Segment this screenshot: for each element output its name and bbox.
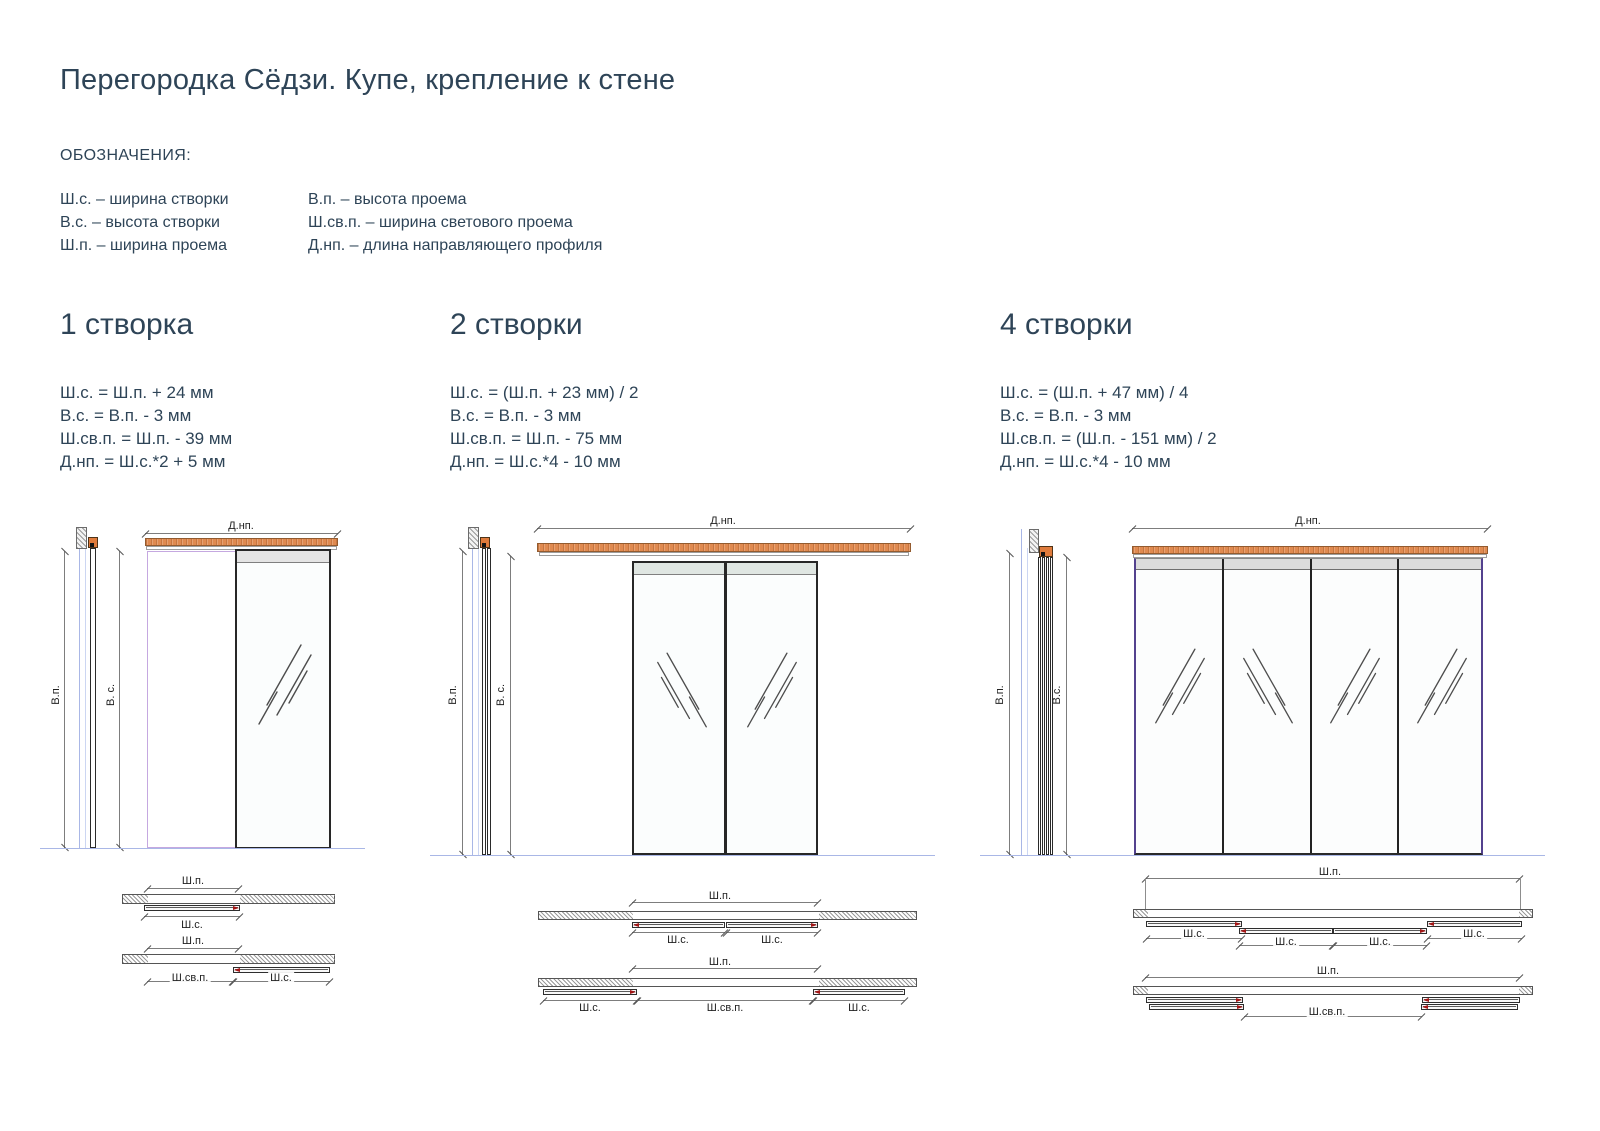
leaf-edge-profile <box>90 548 96 848</box>
roller-marker <box>633 923 639 927</box>
roller-marker <box>234 968 240 972</box>
dim-extension-line <box>1145 878 1146 909</box>
plan-door-bar <box>1333 928 1427 934</box>
dim-extension-line <box>1520 878 1521 909</box>
dim-leaf-width <box>726 932 818 933</box>
plan-wall-hatch <box>819 979 916 986</box>
formulas-2-leaves: Ш.с. = (Ш.п. + 23 мм) / 2 В.с. = В.п. - … <box>450 381 638 473</box>
track-bracket <box>88 537 98 548</box>
dim-label-shs: Ш.с. <box>1273 936 1299 949</box>
roller-marker <box>814 990 820 994</box>
wall-plane-line <box>1027 548 1028 855</box>
dim-label-shs: Ш.с. <box>577 1002 603 1015</box>
plan-wall-hatch <box>123 895 148 903</box>
dim-label-dnp: Д.нп. <box>708 515 738 528</box>
plan-door-bar-line <box>146 907 238 908</box>
formula-line: Ш.с. = (Ш.п. + 23 мм) / 2 <box>450 381 638 404</box>
plan-door-bar <box>1146 997 1243 1003</box>
plan-door-bar <box>1239 928 1333 934</box>
door-header-rail <box>237 551 329 563</box>
wall-hatch-block <box>468 527 479 549</box>
dim-track-length <box>537 528 911 529</box>
dim-opening-width <box>632 902 818 903</box>
plan-wall-hatch <box>1519 987 1532 994</box>
glass-icon <box>1327 629 1383 729</box>
door-leaf <box>235 549 331 849</box>
leaf-edge-profile <box>1042 557 1045 855</box>
dim-label-shs: Ш.с. <box>665 934 691 947</box>
door-leaf <box>632 561 726 855</box>
formula-line: Д.нп. = Ш.с.*2 + 5 мм <box>60 450 232 473</box>
dim-leaf-width <box>632 932 725 933</box>
formula-line: Ш.с. = (Ш.п. + 47 мм) / 4 <box>1000 381 1217 404</box>
plan-door-bar <box>632 922 725 928</box>
leaf-edge-profile <box>1046 557 1049 855</box>
dim-leaf-width <box>813 1000 905 1001</box>
plan-wall <box>1133 909 1533 918</box>
dim-leaf-height <box>510 556 511 855</box>
dim-label-shs: Ш.с. <box>1181 928 1207 941</box>
dim-label-dnp: Д.нп. <box>226 520 256 533</box>
dim-label-shs: Ш.с. <box>1367 936 1393 949</box>
formula-line: Ш.св.п. = (Ш.п. - 151 мм) / 2 <box>1000 427 1217 450</box>
wall-plane-line <box>1021 529 1022 855</box>
roller-marker <box>1237 1005 1243 1009</box>
plan-door-bar-line <box>545 991 635 992</box>
section-heading-1-leaf: 1 створка <box>60 308 193 342</box>
legend-item: В.п. – высота проема <box>308 191 467 209</box>
guide-track <box>1132 546 1488 554</box>
plan-door-bar-line <box>815 991 903 992</box>
formulas-4-leaves: Ш.с. = (Ш.п. + 47 мм) / 4 В.с. = В.п. - … <box>1000 381 1217 473</box>
plan-door-bar <box>1422 997 1520 1003</box>
leaf-edge-profile <box>1038 557 1041 855</box>
dim-track-length <box>1132 528 1488 529</box>
section-heading-2-leaves: 2 створки <box>450 308 583 342</box>
plan-door-bar-line <box>1423 1006 1516 1007</box>
plan-door-bar-line <box>634 924 723 925</box>
track-bracket <box>1039 546 1053 557</box>
plan-door-bar <box>1149 1004 1244 1010</box>
roller-marker <box>1420 929 1426 933</box>
plan-wall-hatch <box>240 955 335 963</box>
plan-door-bar-line <box>235 969 328 970</box>
dim-opening-width <box>147 888 239 889</box>
door-header-rail <box>634 563 724 575</box>
door-header-rail <box>727 563 816 575</box>
glass-icon <box>744 635 800 731</box>
page-title: Перегородка Сёдзи. Купе, крепление к сте… <box>60 64 675 97</box>
glass-icon <box>1414 629 1470 729</box>
legend-item: В.с. – высота створки <box>60 214 220 232</box>
door-leaf-group <box>1134 558 1483 855</box>
plan-door-bar <box>813 989 905 995</box>
plan-door-bar-line <box>1148 999 1241 1000</box>
dim-label-shs: Ш.с. <box>179 919 205 932</box>
dim-label-shsvp: Ш.св.п. <box>705 1002 746 1015</box>
plan-door-bar <box>1427 921 1522 927</box>
dim-label-shp: Ш.п. <box>1317 866 1343 879</box>
plan-door-bar <box>1146 921 1242 927</box>
glass-icon <box>654 635 710 731</box>
plan-door-bar-line <box>1429 923 1520 924</box>
roller-marker <box>1422 1005 1428 1009</box>
leaf-divider <box>1397 559 1399 853</box>
plan-door-bar-line <box>1424 999 1518 1000</box>
dim-leaf-height <box>1066 557 1067 855</box>
legend-heading: ОБОЗНАЧЕНИЯ: <box>60 147 191 165</box>
roller-detail <box>90 543 94 547</box>
plan-wall <box>1133 986 1533 995</box>
dim-label-vp: В.п. <box>447 685 459 704</box>
dim-label-shp: Ш.п. <box>1315 965 1341 978</box>
wall-plane-line <box>472 529 473 855</box>
dim-opening-width <box>147 948 239 949</box>
drawing-sheet: Перегородка Сёдзи. Купе, крепление к сте… <box>0 0 1600 1131</box>
dim-label-vs: В. с. <box>105 684 117 706</box>
formula-line: В.с. = В.п. - 3 мм <box>450 404 638 427</box>
plan-wall-hatch <box>539 979 633 986</box>
plan-door-bar <box>144 905 240 911</box>
plan-door-bar-line <box>1151 1006 1242 1007</box>
floor-line <box>430 855 935 856</box>
formula-line: Д.нп. = Ш.с.*4 - 10 мм <box>1000 450 1217 473</box>
dim-label-vs: В. с. <box>495 684 507 706</box>
section-heading-4-leaves: 4 створки <box>1000 308 1133 342</box>
dim-opening-width <box>632 968 818 969</box>
plan-door-bar <box>543 989 637 995</box>
roller-marker <box>1423 998 1429 1002</box>
plan-wall-hatch <box>539 912 633 919</box>
plan-wall-hatch <box>123 955 148 963</box>
dim-light-opening <box>637 1000 813 1001</box>
plan-door-bar-line <box>1241 930 1331 931</box>
track-bracket <box>480 537 490 548</box>
plan-wall-hatch <box>819 912 916 919</box>
dim-label-shp: Ш.п. <box>180 935 206 948</box>
dim-label-shs: Ш.с. <box>759 934 785 947</box>
dim-label-vp: В.п. <box>994 685 1006 704</box>
legend-item: Д.нп. – длина направляющего профиля <box>308 237 602 255</box>
roller-marker <box>811 923 817 927</box>
roller-detail <box>482 543 486 547</box>
plan-door-bar-line <box>1335 930 1425 931</box>
track-cover-strip <box>539 552 909 556</box>
roller-detail <box>1041 552 1045 556</box>
floor-line <box>40 848 365 849</box>
dim-label-vp: В.п. <box>50 685 62 704</box>
plan-wall <box>538 978 917 987</box>
formula-line: Ш.св.п. = Ш.п. - 75 мм <box>450 427 638 450</box>
plan-wall <box>122 894 335 904</box>
dim-label-vs: В.с. <box>1051 686 1063 705</box>
wall-plane-line <box>85 548 86 848</box>
glass-icon <box>1240 629 1296 729</box>
guide-track <box>145 538 338 546</box>
leaf-edge-profile <box>1050 557 1053 855</box>
dim-opening-height <box>1009 553 1010 855</box>
plan-wall <box>538 911 917 920</box>
formula-line: Д.нп. = Ш.с.*4 - 10 мм <box>450 450 638 473</box>
glass-icon <box>255 627 315 727</box>
door-leaf <box>725 561 818 855</box>
dim-label-shsvp: Ш.св.п. <box>170 972 211 985</box>
leaf-divider <box>1310 559 1312 853</box>
plan-wall-hatch <box>1519 910 1532 917</box>
formula-line: Ш.с. = Ш.п. + 24 мм <box>60 381 232 404</box>
dim-leaf-width <box>543 1000 637 1001</box>
dim-leaf-height <box>119 551 120 848</box>
roller-marker <box>233 906 239 910</box>
leaf-edge-profile <box>482 548 486 855</box>
plan-door-bar-line <box>1148 923 1240 924</box>
dim-label-shp: Ш.п. <box>707 956 733 969</box>
plan-wall-hatch <box>1134 910 1148 917</box>
roller-marker <box>1428 922 1434 926</box>
formula-line: Ш.св.п. = Ш.п. - 39 мм <box>60 427 232 450</box>
leaf-edge-profile <box>487 548 491 855</box>
floor-line <box>980 855 1545 856</box>
legend-item: Ш.п. – ширина проема <box>60 237 227 255</box>
plan-door-bar <box>1421 1004 1518 1010</box>
roller-marker <box>630 990 636 994</box>
dim-label-shs: Ш.с. <box>268 972 294 985</box>
dim-label-shp: Ш.п. <box>707 890 733 903</box>
plan-wall <box>122 954 335 964</box>
glass-icon <box>1152 629 1208 729</box>
wall-hatch-block <box>1029 529 1039 553</box>
dim-label-shs: Ш.с. <box>1461 928 1487 941</box>
dim-leaf-width <box>144 916 240 917</box>
legend-item: Ш.св.п. – ширина светового проема <box>308 214 573 232</box>
plan-wall-hatch <box>1134 987 1148 994</box>
roller-marker <box>1236 998 1242 1002</box>
wall-plane-line <box>478 548 479 855</box>
legend-item: Ш.с. – ширина створки <box>60 191 229 209</box>
dim-opening-width <box>1145 977 1520 978</box>
plan-wall-hatch <box>240 895 335 903</box>
guide-track <box>537 543 911 552</box>
wall-plane-line <box>79 529 80 848</box>
leaf-divider <box>1222 559 1224 853</box>
formula-line: В.с. = В.п. - 3 мм <box>60 404 232 427</box>
dim-opening-height <box>462 551 463 855</box>
dim-opening-width <box>1145 878 1520 879</box>
dim-label-shsvp: Ш.св.п. <box>1307 1006 1348 1019</box>
formulas-1-leaf: Ш.с. = Ш.п. + 24 мм В.с. = В.п. - 3 мм Ш… <box>60 381 232 473</box>
formula-line: В.с. = В.п. - 3 мм <box>1000 404 1217 427</box>
door-header-rail <box>1136 559 1481 570</box>
wall-hatch-block <box>76 527 87 549</box>
dim-track-length <box>145 533 338 534</box>
roller-marker <box>1240 929 1246 933</box>
plan-door-bar <box>726 922 818 928</box>
dim-opening-height <box>64 551 65 848</box>
dim-label-dnp: Д.нп. <box>1293 515 1323 528</box>
roller-marker <box>1235 922 1241 926</box>
dim-label-shp: Ш.п. <box>180 875 206 888</box>
dim-label-shs: Ш.с. <box>846 1002 872 1015</box>
plan-door-bar-line <box>728 924 816 925</box>
